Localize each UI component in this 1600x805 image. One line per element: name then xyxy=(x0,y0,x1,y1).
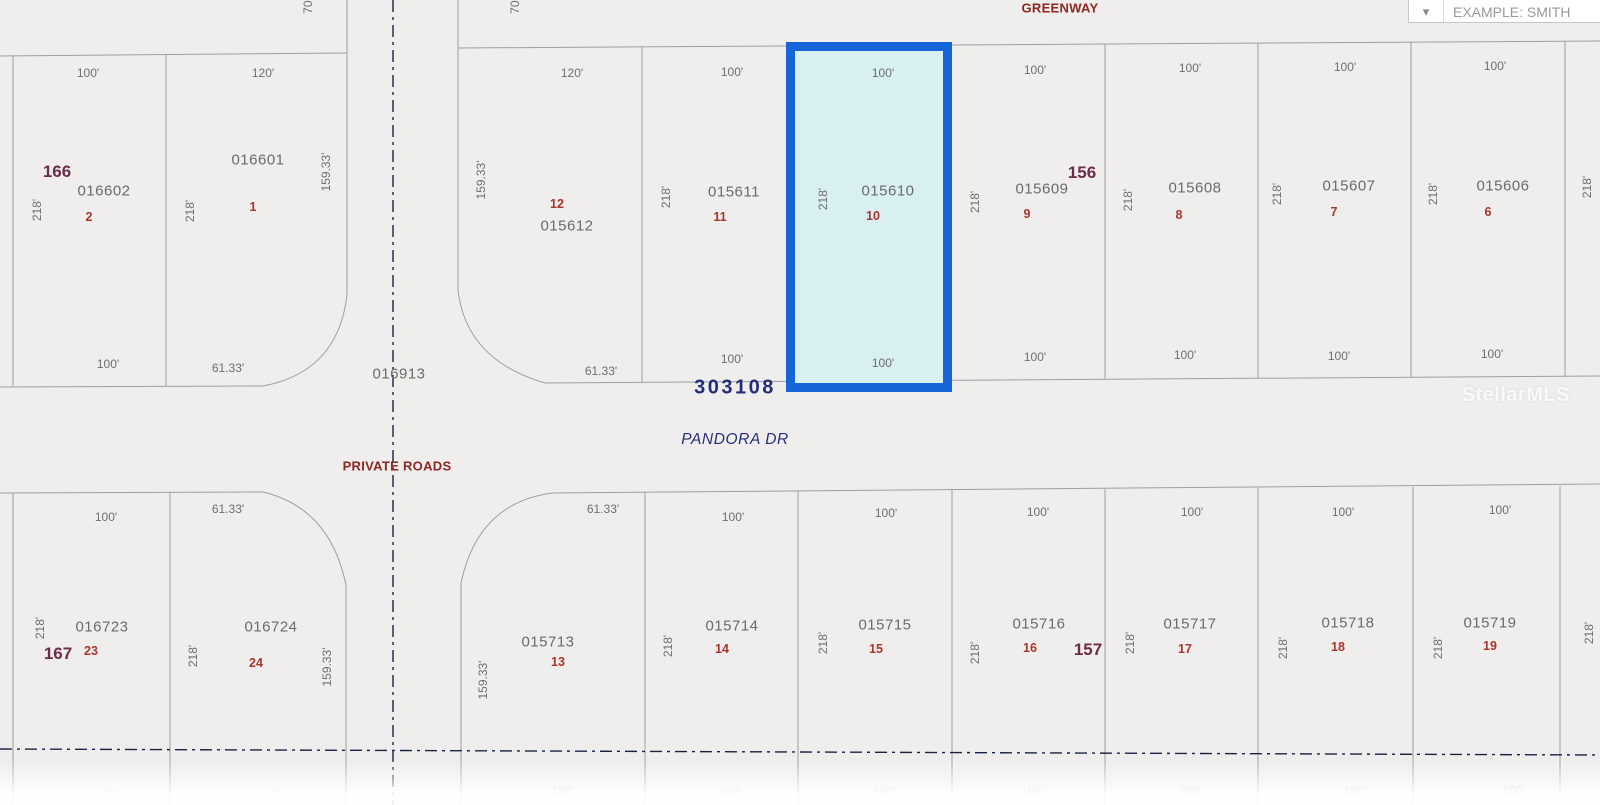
chevron-down-icon[interactable]: ▾ xyxy=(1409,2,1443,22)
lot-number-label: 11 xyxy=(713,210,726,224)
block-number-label: 166 xyxy=(43,162,71,182)
dimension-label-vertical: 218' xyxy=(1270,183,1284,205)
dimension-label: 100' xyxy=(97,357,119,371)
dimension-label: 100' xyxy=(1328,349,1350,363)
parcel-id-label: 015718 xyxy=(1321,615,1374,632)
dimension-label-vertical: 218' xyxy=(1123,632,1137,654)
parcel-id-label: 015715 xyxy=(858,617,911,634)
dimension-label-vertical: 218' xyxy=(1582,622,1596,644)
dimension-label-vertical: 218' xyxy=(659,186,673,208)
dimension-label-vertical: 218' xyxy=(1431,637,1445,659)
dimension-label: 100' xyxy=(1027,505,1049,519)
dimension-label: 120' xyxy=(561,66,583,80)
dimension-label: 100' xyxy=(1484,59,1506,73)
dimension-label: 61.33' xyxy=(587,502,619,516)
dimension-label-vertical: 218' xyxy=(1426,183,1440,205)
dimension-label: 61.33' xyxy=(585,364,617,378)
dimension-label: 120' xyxy=(551,784,573,798)
block-number-label: 157 xyxy=(1074,640,1102,660)
lot-number-label: 2 xyxy=(86,210,93,224)
lot-number-label: 23 xyxy=(84,644,98,658)
dimension-label: 120' xyxy=(259,787,281,801)
parcel-id-label: 015606 xyxy=(1476,178,1529,195)
dimension-label-vertical: 218' xyxy=(30,199,44,221)
dimension-label-vertical: 218' xyxy=(968,191,982,213)
dimension-label: 100' xyxy=(1021,785,1043,799)
dimension-label: 100' xyxy=(1489,503,1511,517)
dimension-label-vertical: 218' xyxy=(1580,176,1594,198)
street-name-label: GREENWAY xyxy=(1021,1,1098,16)
lot-number-label: 16 xyxy=(1023,641,1037,655)
dimension-label-vertical: 159.33' xyxy=(319,153,333,192)
dimension-label-vertical: 218' xyxy=(1276,637,1290,659)
parcel-id-label: 015719 xyxy=(1463,615,1516,632)
parcel-id-label: 016913 xyxy=(372,366,425,383)
dimension-label: 61.33' xyxy=(212,361,244,375)
dimension-label-vertical: 218' xyxy=(968,642,982,664)
owner-search-value[interactable]: EXAMPLE: SMITH xyxy=(1444,2,1600,22)
dimension-label-vertical: 218' xyxy=(33,617,47,639)
dimension-label-vertical: 218' xyxy=(816,632,830,654)
lot-number-label: 12 xyxy=(550,197,564,211)
street-name-label: PRIVATE ROADS xyxy=(343,459,452,474)
dimension-label: 100' xyxy=(96,787,118,801)
dimension-label: 100' xyxy=(1332,505,1354,519)
dimension-label: 100' xyxy=(1181,505,1203,519)
dimension-label-vertical: 70' xyxy=(508,0,522,14)
lot-number-label: 10 xyxy=(866,209,880,223)
dimension-label: 100' xyxy=(1481,347,1503,361)
parcel-id-label: 016602 xyxy=(77,183,130,200)
lot-number-label: 14 xyxy=(715,642,729,656)
lot-number-label: 6 xyxy=(1485,205,1492,219)
parcel-id-label: 016723 xyxy=(75,619,128,636)
lot-number-label: 7 xyxy=(1331,205,1338,219)
parcel-id-label: 016601 xyxy=(231,152,284,169)
parcel-id-label: 015610 xyxy=(861,183,914,200)
stellar-mls-watermark: StellarMLS xyxy=(1440,384,1570,407)
parcel-id-label: 015716 xyxy=(1012,616,1065,633)
parcel-id-label: 015607 xyxy=(1322,178,1375,195)
parcel-id-label: 015612 xyxy=(540,218,593,235)
dimension-label: 100' xyxy=(719,785,741,799)
block-number-label: 167 xyxy=(44,644,72,664)
parcel-id-label: 015717 xyxy=(1163,616,1216,633)
lot-number-label: 9 xyxy=(1024,207,1031,221)
lot-number-label: 1 xyxy=(250,200,257,214)
owner-search-dropdown[interactable]: ▾ EXAMPLE: SMITH xyxy=(1408,0,1600,23)
parcel-id-label: 015611 xyxy=(708,184,760,201)
dimension-label: 100' xyxy=(77,66,99,80)
parcel-id-label: 015608 xyxy=(1168,180,1221,197)
parcel-id-label: 015713 xyxy=(521,634,574,651)
dimension-label: 100' xyxy=(1174,348,1196,362)
parcel-id-label: 015609 xyxy=(1015,181,1068,198)
dimension-label-vertical: 159.33' xyxy=(474,161,488,200)
plat-map-screen: 70'70'GREENWAY100'120'1660166022218'0166… xyxy=(0,0,1600,805)
lot-number-label: 15 xyxy=(869,642,883,656)
dimension-label: 100' xyxy=(1344,784,1366,798)
parcel-id-label: 015714 xyxy=(705,618,758,635)
lot-number-label: 8 xyxy=(1176,208,1183,222)
dimension-label-vertical: 218' xyxy=(183,200,197,222)
lot-number-label: 17 xyxy=(1178,642,1192,656)
dimension-label: 100' xyxy=(1024,63,1046,77)
dimension-label: 100' xyxy=(873,785,895,799)
dimension-label: 100' xyxy=(1334,60,1356,74)
dimension-label: 100' xyxy=(721,65,743,79)
dimension-label: 100' xyxy=(95,510,117,524)
dimension-label: 100' xyxy=(1179,784,1201,798)
dimension-label: 100' xyxy=(722,510,744,524)
lot-number-label: 24 xyxy=(249,656,263,670)
dimension-label-vertical: 218' xyxy=(186,645,200,667)
dimension-label: 120' xyxy=(252,66,274,80)
parcel-id-label: 016724 xyxy=(244,619,297,636)
dimension-label-vertical: 218' xyxy=(1121,189,1135,211)
map-labels-layer: 70'70'GREENWAY100'120'1660166022218'0166… xyxy=(0,0,1600,805)
street-name-label: PANDORA DR xyxy=(681,431,789,449)
lot-number-label: 18 xyxy=(1331,640,1345,654)
plat-number-label: 303108 xyxy=(694,377,776,400)
dimension-label: 100' xyxy=(872,356,894,370)
dimension-label-vertical: 159.33' xyxy=(476,661,490,700)
dimension-label-vertical: 70' xyxy=(301,0,315,14)
dimension-label-vertical: 218' xyxy=(816,188,830,210)
dimension-label: 100' xyxy=(1502,783,1524,797)
lot-number-label: 19 xyxy=(1483,639,1497,653)
block-number-label: 156 xyxy=(1068,163,1096,183)
dimension-label: 100' xyxy=(875,506,897,520)
dimension-label: 100' xyxy=(872,66,894,80)
dimension-label: 61.33' xyxy=(212,502,244,516)
dimension-label-vertical: 159.33' xyxy=(320,648,334,687)
dimension-label-vertical: 218' xyxy=(661,635,675,657)
dimension-label: 100' xyxy=(1179,61,1201,75)
lot-number-label: 13 xyxy=(551,655,565,669)
dimension-label: 100' xyxy=(1024,350,1046,364)
dimension-label: 100' xyxy=(721,352,743,366)
